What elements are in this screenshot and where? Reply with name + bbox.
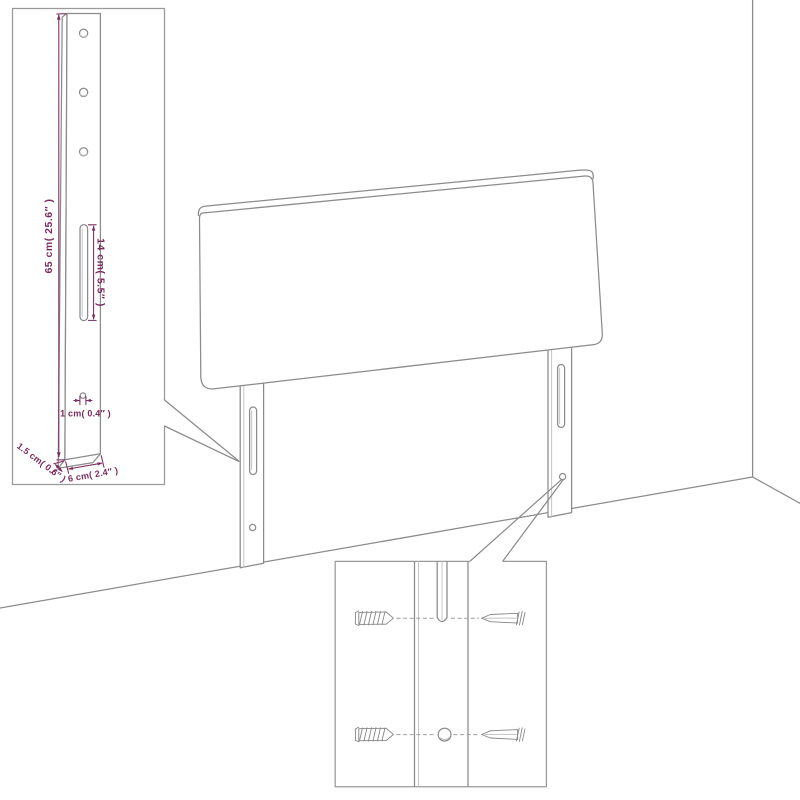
screw-left-bottom (355, 727, 393, 742)
headboard-right-leg (548, 342, 572, 517)
dimension-slot-label: 14 cm( 5.5″ ) (94, 238, 106, 307)
left-leg-hole (250, 524, 256, 530)
leg-slot-detail (80, 225, 88, 321)
panel-face (199, 176, 602, 389)
dimension-height-label: 65 cm( 25.6″ ) (43, 198, 55, 273)
right-leg-hole (560, 474, 566, 480)
leg-small-hole (80, 393, 85, 398)
dimension-hole-label: 1 cm( 0.4″ ) (60, 409, 111, 419)
screw-left-top (355, 611, 393, 626)
inset-hole (438, 728, 451, 741)
diagram-canvas: 65 cm( 25.6″ ) 14 cm( 5.5″ ) 1 cm( 0.4″ … (0, 0, 800, 800)
left-leg-slot (250, 407, 257, 475)
right-leg-slot (558, 365, 565, 428)
screw-inset-border (335, 561, 546, 786)
dimension-width: 6 cm( 2.4″ ) (66, 456, 119, 484)
headboard-left-leg (240, 376, 263, 568)
screw-detail-inset (335, 479, 563, 787)
headboard-panel (198, 170, 602, 389)
headboard-dimension-diagram: 65 cm( 25.6″ ) 14 cm( 5.5″ ) 1 cm( 0.4″ … (0, 0, 800, 800)
leg-inset-callout-lines (165, 400, 239, 461)
